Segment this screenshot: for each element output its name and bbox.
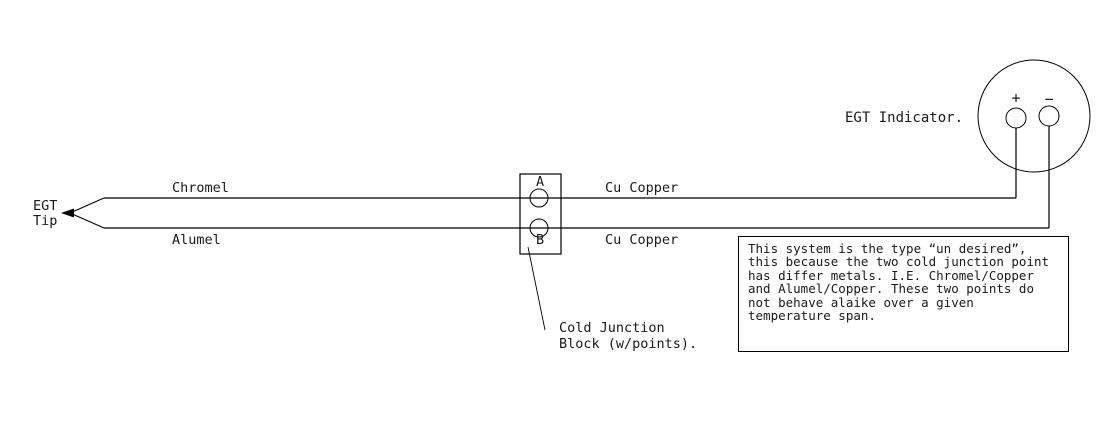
indicator-body-circle: [978, 60, 1090, 172]
cold-junction-caption-line1: Cold Junction: [559, 321, 697, 337]
egt-indicator-label: EGT Indicator.: [845, 111, 963, 126]
cu-copper-top-label: Cu Copper: [605, 181, 678, 196]
caption-leader-line: [528, 247, 545, 330]
cold-junction-caption: Cold Junction Block (w/points).: [559, 321, 697, 352]
indicator-minus-terminal-icon: [1039, 106, 1059, 126]
note-line: has differ metals. I.E. Chromel/Copper: [748, 269, 1068, 282]
indicator-plus-terminal-icon: [1006, 108, 1026, 128]
terminal-b-label: B: [536, 233, 544, 248]
chromel-label: Chromel: [172, 181, 229, 196]
alumel-label: Alumel: [172, 233, 221, 248]
cu-copper-bottom-label: Cu Copper: [605, 233, 678, 248]
note-box: This system is the type “un desired”, th…: [738, 236, 1069, 352]
egt-tip-label-line1: EGT: [33, 199, 57, 214]
egt-wiring-diagram: EGT Tip Chromel Alumel Cu Copper Cu Copp…: [0, 0, 1097, 441]
minus-sign: −: [1044, 90, 1053, 108]
diagram-lines: [0, 0, 1097, 441]
note-line: temperature span.: [748, 309, 1068, 322]
cold-junction-caption-line2: Block (w/points).: [559, 337, 697, 353]
egt-tip-label: EGT Tip: [33, 199, 57, 229]
tip-taper-bottom-line: [70, 213, 104, 228]
note-line: This system is the type “un desired”,: [748, 242, 1068, 255]
tip-arrowhead-icon: [61, 209, 74, 218]
note-line: this because the two cold junction point: [748, 255, 1068, 268]
note-line: and Alumel/Copper. These two points do: [748, 282, 1068, 295]
egt-tip-label-line2: Tip: [33, 214, 57, 229]
terminal-a-label: A: [536, 175, 544, 190]
note-line: not behave alaike over a given: [748, 296, 1068, 309]
plus-sign: +: [1011, 89, 1020, 107]
tip-taper-top-line: [70, 198, 104, 213]
